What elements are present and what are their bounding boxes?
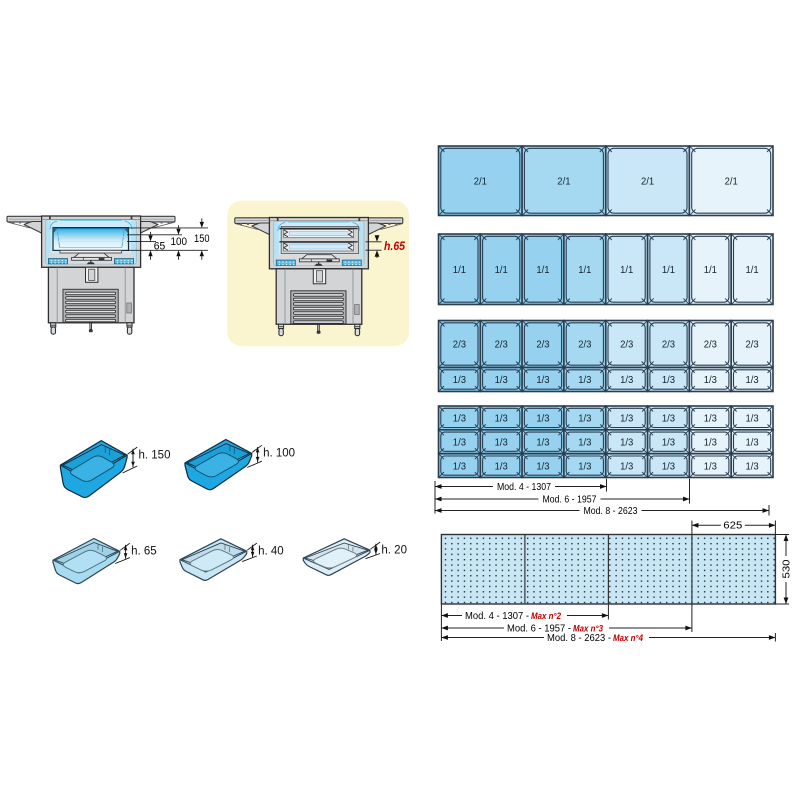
svg-text:1/3: 1/3 [704, 461, 717, 472]
svg-text:1/3: 1/3 [578, 414, 591, 425]
svg-text:1/1: 1/1 [662, 265, 675, 276]
svg-text:h. 20: h. 20 [381, 545, 407, 557]
svg-text:1/1: 1/1 [453, 265, 466, 276]
svg-text:1/3: 1/3 [453, 375, 466, 386]
svg-text:1/3: 1/3 [662, 414, 675, 425]
svg-text:h. 100: h. 100 [263, 448, 295, 460]
svg-text:2/3: 2/3 [620, 340, 633, 351]
svg-text:1/1: 1/1 [620, 265, 633, 276]
svg-text:1/3: 1/3 [536, 461, 549, 472]
svg-text:Max n°4: Max n°4 [613, 633, 643, 643]
svg-text:1/3: 1/3 [746, 438, 759, 449]
svg-text:2/1: 2/1 [474, 177, 487, 188]
svg-text:1/3: 1/3 [662, 375, 675, 386]
svg-text:530: 530 [781, 559, 792, 578]
svg-text:1/3: 1/3 [746, 414, 759, 425]
svg-text:2/1: 2/1 [725, 177, 738, 188]
svg-text:2/1: 2/1 [641, 177, 654, 188]
svg-text:625: 625 [723, 521, 742, 532]
svg-text:2/3: 2/3 [704, 340, 717, 351]
svg-text:1/3: 1/3 [453, 438, 466, 449]
svg-text:1/1: 1/1 [536, 265, 549, 276]
svg-text:2/3: 2/3 [578, 340, 591, 351]
svg-text:1/3: 1/3 [746, 375, 759, 386]
svg-text:1/3: 1/3 [495, 414, 508, 425]
svg-text:1/3: 1/3 [495, 375, 508, 386]
svg-text:1/3: 1/3 [620, 375, 633, 386]
svg-text:1/3: 1/3 [704, 375, 717, 386]
svg-text:1/1: 1/1 [578, 265, 591, 276]
svg-text:1/3: 1/3 [453, 414, 466, 425]
svg-text:1/3: 1/3 [704, 414, 717, 425]
svg-text:Mod. 8 - 2623 -: Mod. 8 - 2623 - [547, 633, 611, 644]
svg-text:2/3: 2/3 [495, 340, 508, 351]
svg-text:1/3: 1/3 [662, 461, 675, 472]
svg-text:1/3: 1/3 [453, 461, 466, 472]
svg-text:1/3: 1/3 [495, 438, 508, 449]
svg-text:1/3: 1/3 [536, 375, 549, 386]
svg-text:Max n°3: Max n°3 [573, 623, 603, 633]
svg-text:2/3: 2/3 [536, 340, 549, 351]
svg-text:Mod. 6 - 1957: Mod. 6 - 1957 [543, 494, 597, 505]
svg-text:1/1: 1/1 [495, 265, 508, 276]
svg-text:1/3: 1/3 [536, 414, 549, 425]
svg-text:1/3: 1/3 [746, 461, 759, 472]
svg-text:2/3: 2/3 [662, 340, 675, 351]
svg-text:1/3: 1/3 [620, 414, 633, 425]
svg-text:2/3: 2/3 [746, 340, 759, 351]
svg-text:1/1: 1/1 [746, 265, 759, 276]
svg-text:h. 150: h. 150 [139, 450, 171, 462]
svg-text:100: 100 [171, 236, 188, 248]
svg-text:h. 40: h. 40 [258, 546, 284, 558]
svg-text:1/3: 1/3 [620, 438, 633, 449]
svg-text:1/3: 1/3 [578, 438, 591, 449]
svg-text:1/3: 1/3 [495, 461, 508, 472]
svg-text:1/3: 1/3 [704, 438, 717, 449]
svg-text:150: 150 [194, 233, 210, 245]
svg-text:2/3: 2/3 [453, 340, 466, 351]
svg-text:h.65: h.65 [384, 241, 406, 253]
svg-text:1/1: 1/1 [704, 265, 717, 276]
svg-text:2/1: 2/1 [557, 177, 570, 188]
svg-text:1/3: 1/3 [536, 438, 549, 449]
svg-text:h. 65: h. 65 [131, 546, 157, 558]
svg-text:Max n°2: Max n°2 [531, 611, 561, 621]
svg-text:1/3: 1/3 [662, 438, 675, 449]
svg-text:1/3: 1/3 [578, 461, 591, 472]
svg-text:Mod. 4 - 1307 -: Mod. 4 - 1307 - [465, 611, 529, 622]
svg-text:Mod. 8 - 2623: Mod. 8 - 2623 [584, 506, 638, 517]
svg-text:1/3: 1/3 [578, 375, 591, 386]
svg-text:Mod. 4 - 1307: Mod. 4 - 1307 [497, 482, 551, 493]
svg-text:65: 65 [154, 240, 166, 252]
svg-text:1/3: 1/3 [620, 461, 633, 472]
